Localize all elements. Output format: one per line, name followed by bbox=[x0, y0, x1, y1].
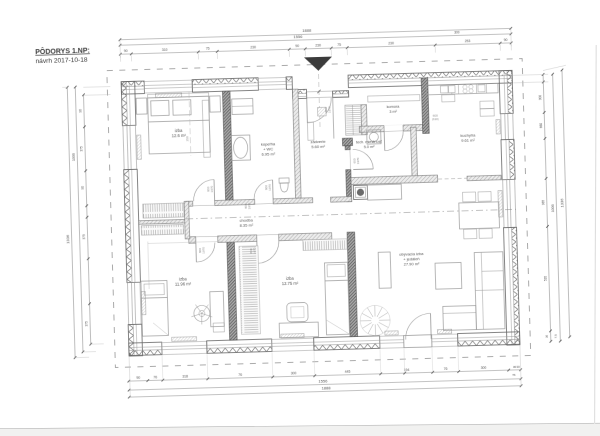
svg-text:9.61 m²: 9.61 m² bbox=[461, 137, 475, 142]
svg-text:3 m²: 3 m² bbox=[389, 110, 397, 114]
svg-text:1556: 1556 bbox=[293, 34, 303, 39]
svg-text:30: 30 bbox=[516, 365, 520, 369]
svg-text:230: 230 bbox=[250, 45, 256, 49]
svg-text:76: 76 bbox=[238, 373, 242, 377]
svg-text:75: 75 bbox=[337, 43, 341, 47]
svg-text:30: 30 bbox=[545, 334, 549, 338]
svg-text:90: 90 bbox=[295, 44, 299, 48]
svg-text:1970: 1970 bbox=[268, 184, 272, 191]
svg-text:90: 90 bbox=[78, 109, 82, 113]
svg-text:445: 445 bbox=[345, 370, 351, 374]
svg-text:1970: 1970 bbox=[252, 247, 256, 254]
svg-text:1888: 1888 bbox=[322, 385, 332, 390]
svg-text:1970: 1970 bbox=[327, 106, 331, 113]
svg-text:tech. miestnosť: tech. miestnosť bbox=[356, 140, 383, 145]
svg-text:1970: 1970 bbox=[210, 185, 214, 192]
svg-text:27.90 m²: 27.90 m² bbox=[404, 261, 421, 266]
svg-text:8.35 m²: 8.35 m² bbox=[239, 222, 253, 227]
svg-text:7,5: 7,5 bbox=[554, 334, 558, 339]
svg-text:1970: 1970 bbox=[356, 157, 360, 164]
svg-text:300: 300 bbox=[538, 95, 542, 101]
svg-text:520: 520 bbox=[543, 276, 547, 282]
svg-text:komora: komora bbox=[387, 105, 401, 109]
svg-text:90: 90 bbox=[124, 49, 128, 53]
svg-text:76: 76 bbox=[153, 375, 157, 379]
svg-text:PÔDORYS 1.NP:: PÔDORYS 1.NP: bbox=[35, 45, 90, 56]
svg-text:90: 90 bbox=[81, 186, 85, 190]
svg-text:1888: 1888 bbox=[302, 28, 312, 33]
svg-text:230: 230 bbox=[388, 41, 394, 45]
svg-text:1336: 1336 bbox=[559, 198, 564, 208]
svg-text:5.0 m²: 5.0 m² bbox=[364, 145, 376, 149]
svg-text:6.95 m²: 6.95 m² bbox=[261, 151, 275, 156]
svg-text:1970: 1970 bbox=[247, 202, 251, 209]
svg-text:1970: 1970 bbox=[201, 247, 205, 254]
svg-text:300: 300 bbox=[454, 30, 460, 34]
svg-text:660: 660 bbox=[539, 123, 543, 129]
svg-text:76: 76 bbox=[512, 373, 516, 377]
svg-text:12.75 m²: 12.75 m² bbox=[282, 281, 299, 286]
svg-text:1556: 1556 bbox=[318, 378, 328, 383]
svg-text:75: 75 bbox=[206, 47, 210, 51]
svg-text:1006: 1006 bbox=[72, 153, 76, 161]
svg-text:985: 985 bbox=[541, 200, 545, 206]
svg-text:5.60 m²: 5.60 m² bbox=[311, 144, 325, 149]
svg-text:1336: 1336 bbox=[65, 234, 70, 244]
svg-text:375: 375 bbox=[85, 321, 89, 327]
svg-text:1006: 1006 bbox=[551, 204, 555, 212]
svg-text:310: 310 bbox=[162, 48, 168, 52]
svg-text:návrh 2017-10-18: návrh 2017-10-18 bbox=[35, 57, 88, 66]
svg-text:(610): (610) bbox=[432, 117, 439, 121]
svg-text:300: 300 bbox=[291, 371, 297, 375]
svg-text:318: 318 bbox=[182, 374, 188, 378]
svg-text:90: 90 bbox=[504, 38, 508, 42]
svg-text:11.96 m²: 11.96 m² bbox=[175, 281, 192, 286]
svg-text:253: 253 bbox=[465, 39, 471, 43]
svg-text:300: 300 bbox=[481, 366, 487, 370]
svg-text:375: 375 bbox=[79, 146, 83, 152]
svg-text:90: 90 bbox=[136, 376, 140, 380]
svg-text:230: 230 bbox=[315, 43, 321, 47]
svg-text:375: 375 bbox=[82, 234, 86, 240]
svg-text:76: 76 bbox=[444, 367, 448, 371]
svg-text:12.6 m²: 12.6 m² bbox=[172, 133, 187, 138]
